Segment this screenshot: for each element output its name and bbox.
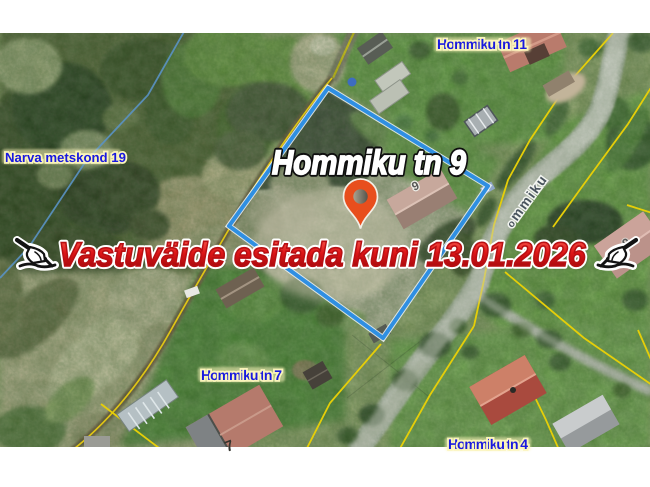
svg-text:Hommiku tn 9: Hommiku tn 9 [272, 144, 466, 182]
svg-text:Hommiku tn 7: Hommiku tn 7 [201, 367, 282, 383]
svg-text:Vastuväide esitada kuni 13.01.: Vastuväide esitada kuni 13.01.2026 [59, 236, 587, 274]
svg-text:Hommiku tn 11: Hommiku tn 11 [437, 36, 527, 52]
svg-text:Narva metskond 19: Narva metskond 19 [5, 150, 126, 165]
svg-text:Hommiku tn 4: Hommiku tn 4 [448, 436, 528, 452]
